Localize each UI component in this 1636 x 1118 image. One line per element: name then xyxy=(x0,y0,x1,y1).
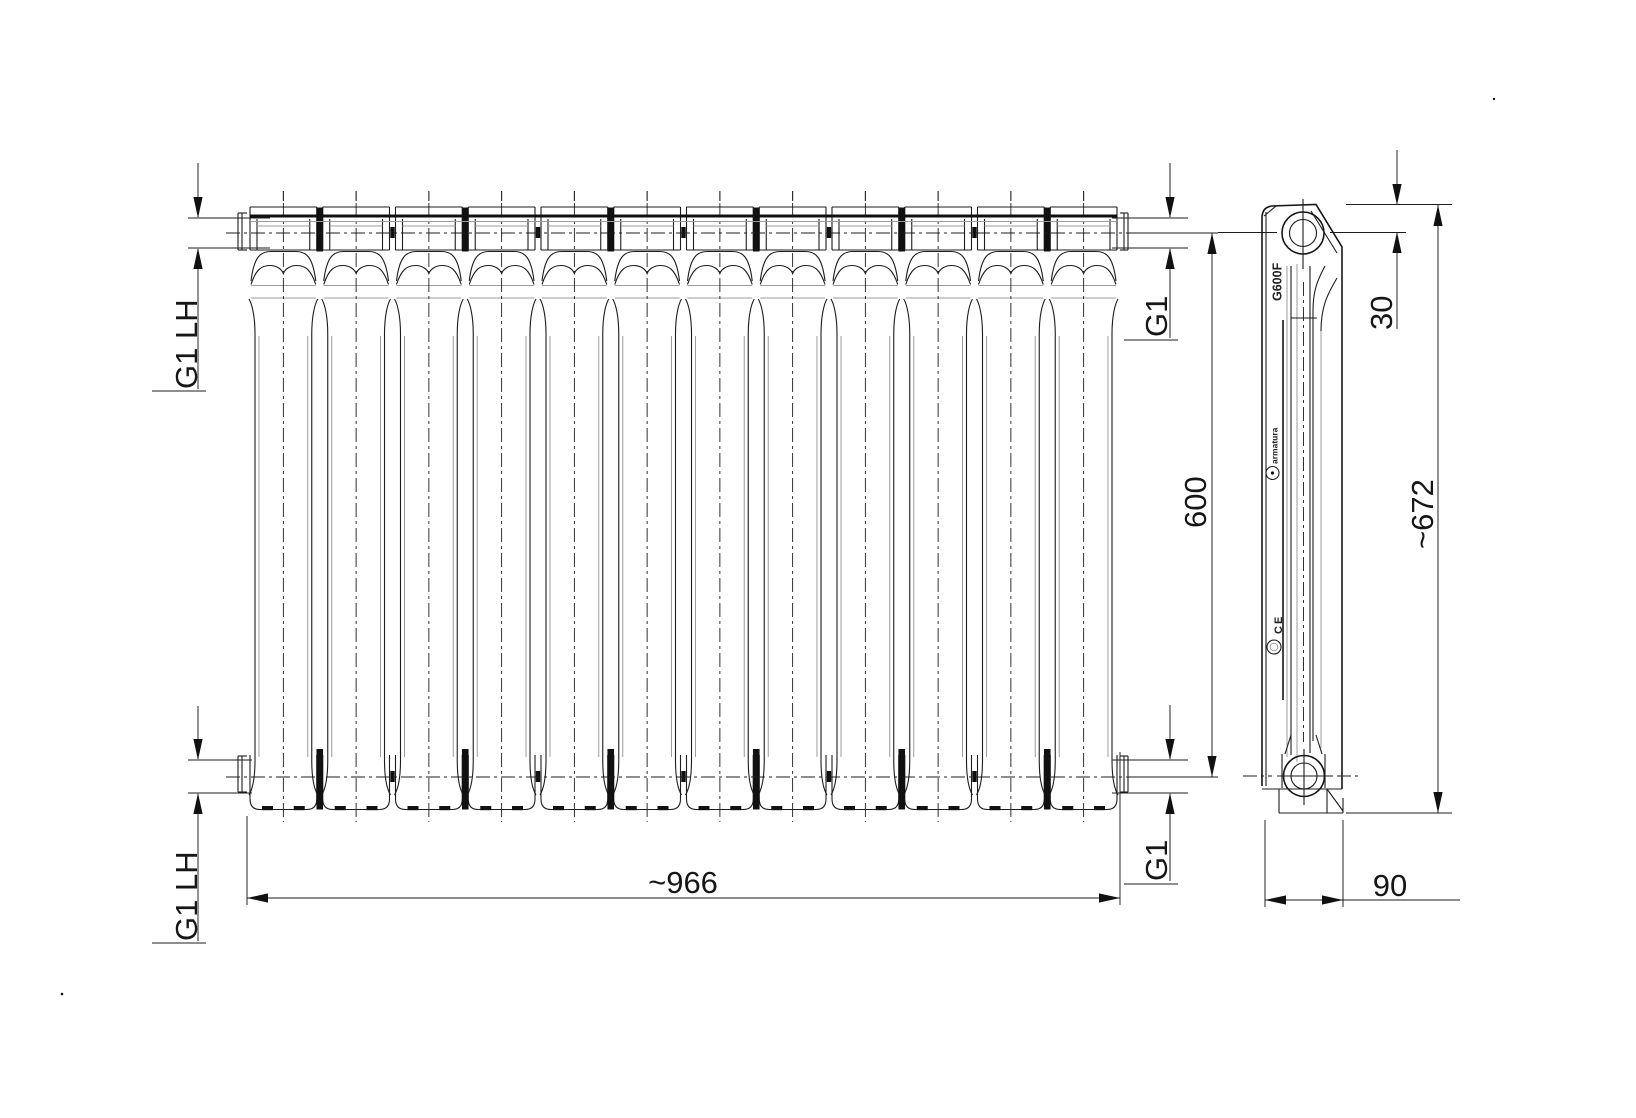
side-marking-ce: CE xyxy=(1273,615,1285,634)
radiator-technical-drawing: G1 LH G1 LH G1 G1 600 ~672 30 ~966 90 G6… xyxy=(0,0,1636,1118)
side-view xyxy=(1243,199,1362,813)
dimension-lines xyxy=(61,98,1496,996)
dim-label-port-offset: 30 xyxy=(1364,296,1399,330)
dim-label-bottom-right-connection: G1 xyxy=(1139,840,1174,881)
side-marking-brand: armatura xyxy=(1270,427,1280,464)
dim-label-overall-width: ~966 xyxy=(648,865,718,900)
dim-label-axis-spacing: 600 xyxy=(1178,476,1213,528)
dim-label-overall-height: ~672 xyxy=(1405,479,1440,549)
dim-label-depth: 90 xyxy=(1373,868,1407,903)
drawing-sheet: G1 LH G1 LH G1 G1 600 ~672 30 ~966 90 G6… xyxy=(0,0,1636,1118)
side-marking-model: G600F xyxy=(1271,262,1285,301)
dim-label-top-right-connection: G1 xyxy=(1139,296,1174,337)
certification-mark-icon xyxy=(1267,640,1281,654)
brand-logo-icon xyxy=(1266,467,1279,480)
dim-label-top-left-connection: G1 LH xyxy=(169,299,204,389)
front-view xyxy=(226,191,1136,822)
dim-label-bottom-left-connection: G1 LH xyxy=(169,851,204,941)
